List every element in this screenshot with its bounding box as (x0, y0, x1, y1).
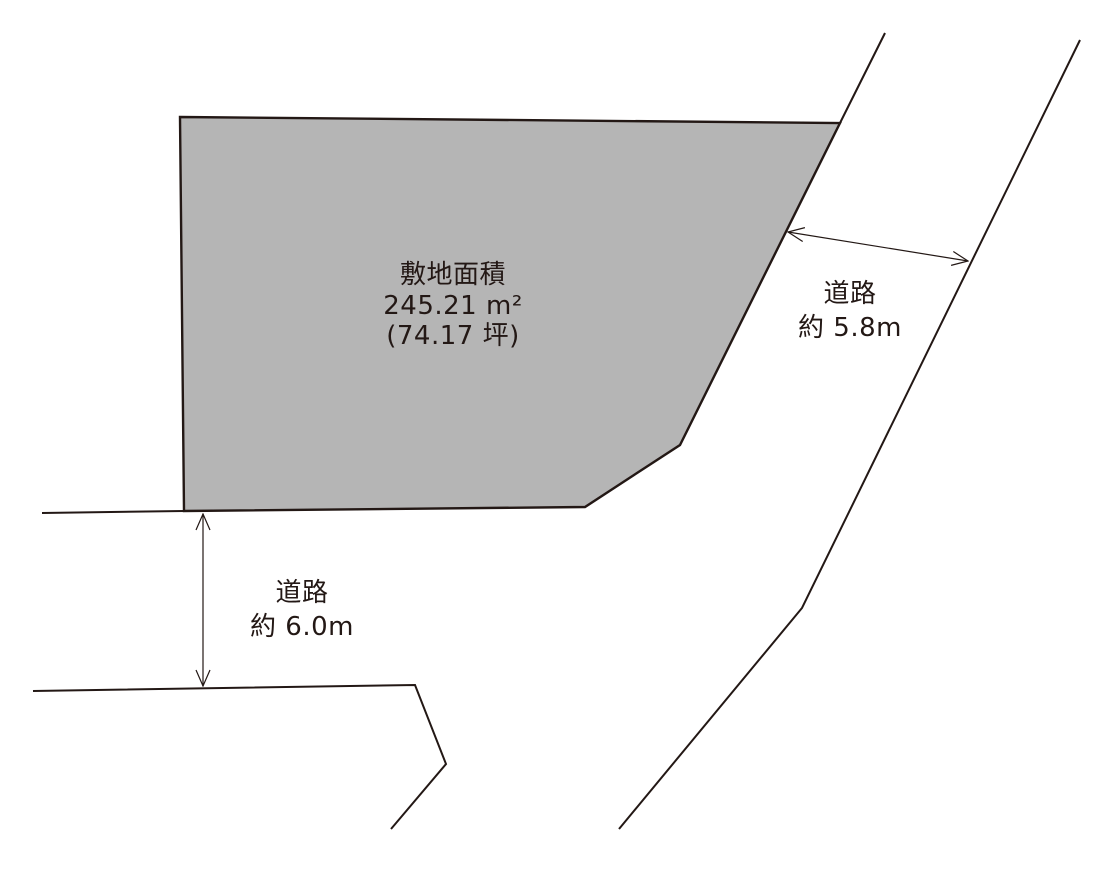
road-east-label: 道路 (823, 279, 876, 309)
site-plan-diagram: 敷地面積 245.21 m² (74.17 坪) 道路 約 5.8m 道路 約 … (0, 0, 1116, 872)
road-east-width-arrow (788, 232, 968, 261)
road-south-label: 道路 (275, 578, 328, 608)
road-south-lower-boundary-line (33, 685, 446, 829)
site-plan-svg: 敷地面積 245.21 m² (74.17 坪) 道路 約 5.8m 道路 約 … (0, 0, 1116, 872)
road-east-left-boundary-line (840, 33, 885, 123)
plot-area-title: 敷地面積 (400, 260, 506, 290)
road-south-width-label: 約 6.0m (250, 612, 354, 642)
plot-area-tsubo: (74.17 坪) (386, 321, 520, 351)
plot-area-value: 245.21 m² (383, 291, 523, 321)
road-east-width-label: 約 5.8m (798, 313, 902, 343)
road-south-upper-boundary-line (42, 511, 184, 513)
